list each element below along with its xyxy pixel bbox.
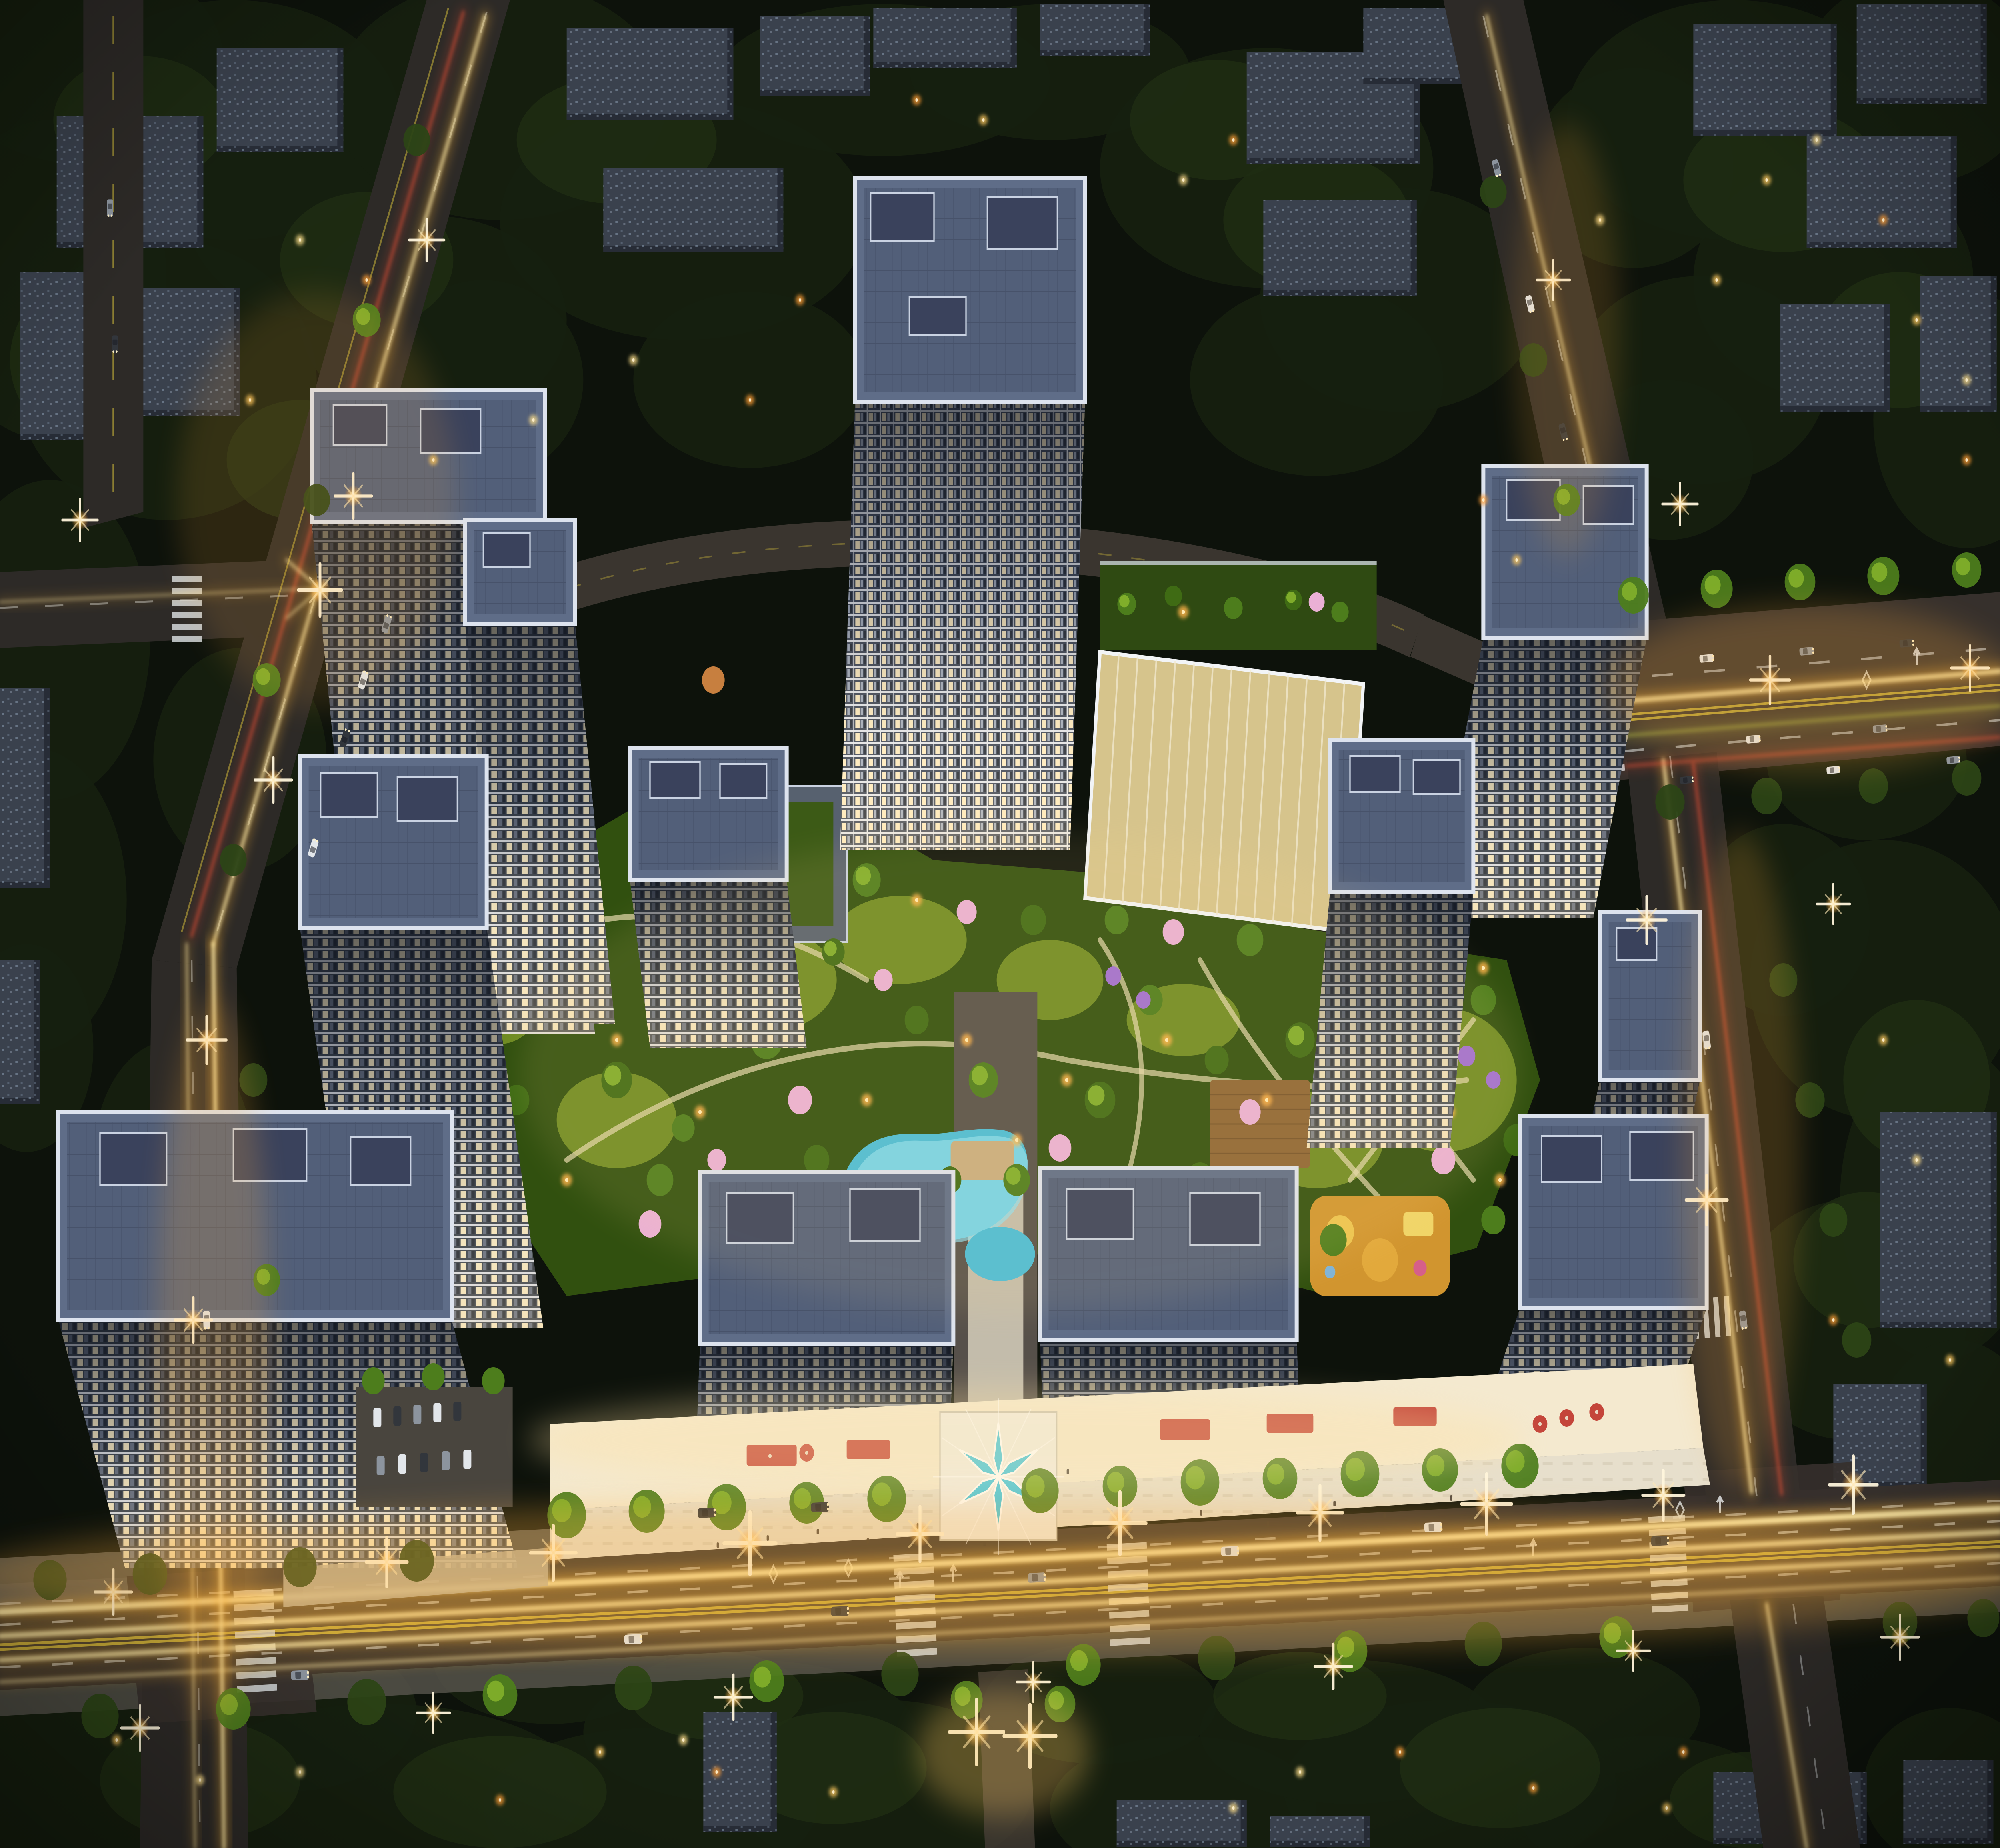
aerial-night-render xyxy=(0,0,2000,1848)
vignette-overlay xyxy=(0,0,2000,1848)
aerial-render-viewport xyxy=(0,0,2000,1848)
